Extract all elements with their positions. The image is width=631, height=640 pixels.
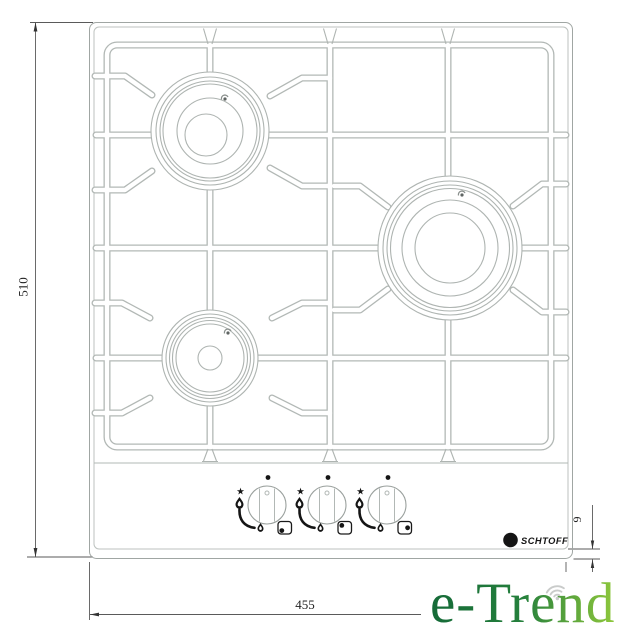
burner-position-rear-left-icon [338,522,352,535]
star-icon: ★ [236,487,245,498]
watermark-text: e-Trend [430,572,615,635]
knob-off-dot-icon [386,475,391,480]
arrow-left-icon [90,613,99,617]
burner-rear-left [151,72,269,190]
arrow-down-icon [34,548,38,557]
knob-rear-left: ★ [296,475,352,534]
hob-technical-drawing-page: 510 455 9 [0,0,631,640]
flame-large-icon [236,497,244,509]
flame-large-icon [296,497,304,509]
knob-off-dot-icon [326,475,331,480]
knob-front-left: ★ [236,475,292,534]
burner-position-front-left-icon [278,522,292,535]
arrow-down-icon [591,541,594,550]
flame-small-icon [378,523,384,532]
brand-name: SCHTOFF [521,536,568,546]
dimension-label-width: 455 [295,597,315,612]
watermark: e-Trend [430,572,615,635]
flame-small-icon [258,523,264,532]
burner-position-right-icon [398,522,412,535]
knob-off-dot-icon [266,475,271,480]
burner-front-left [162,310,258,406]
flame-large-icon [356,497,364,509]
burner-right [378,176,522,320]
brand-logo-letter: S [507,535,514,547]
knob-dial [308,486,346,524]
flame-small-icon [318,523,324,532]
star-icon: ★ [356,487,365,498]
knob-dial [368,486,406,524]
arrow-up-icon [591,560,594,569]
dimension-label-depth: 510 [16,277,31,297]
dimension-510-depth [27,23,93,558]
arrow-up-icon [34,23,38,32]
knob-dial [248,486,286,524]
star-icon: ★ [296,487,305,498]
brand-logo: S SCHTOFF [503,533,568,548]
hob-technical-drawing: 510 455 9 [0,0,631,640]
knob-right: ★ [356,475,412,534]
